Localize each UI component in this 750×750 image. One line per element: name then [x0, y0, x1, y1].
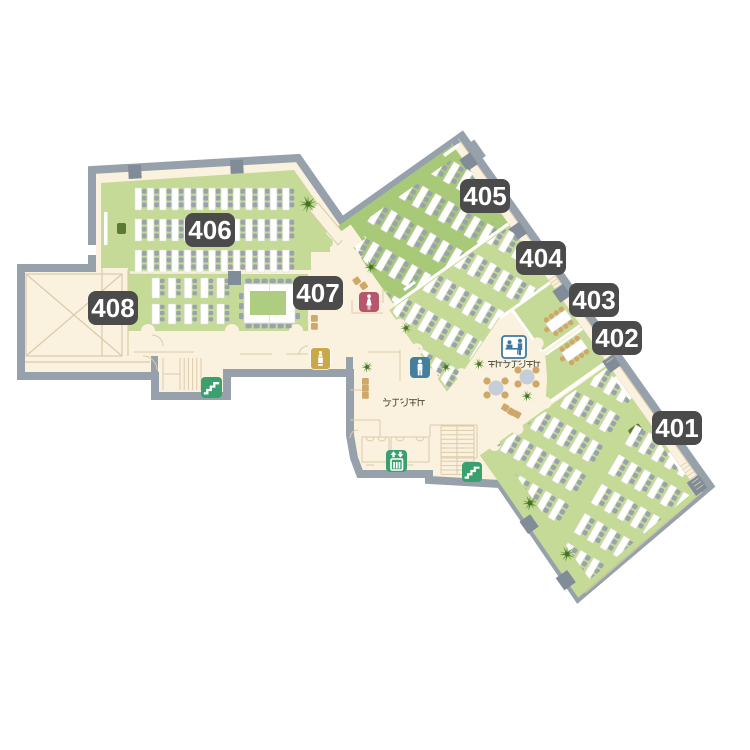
svg-text:407: 407: [296, 278, 339, 308]
svg-text:406: 406: [188, 215, 231, 245]
svg-text:402: 402: [595, 323, 638, 353]
svg-text:401: 401: [655, 413, 698, 443]
svg-text:404: 404: [519, 243, 563, 273]
svg-text:403: 403: [572, 285, 615, 315]
svg-text:405: 405: [463, 181, 506, 211]
svg-text:408: 408: [91, 293, 134, 323]
